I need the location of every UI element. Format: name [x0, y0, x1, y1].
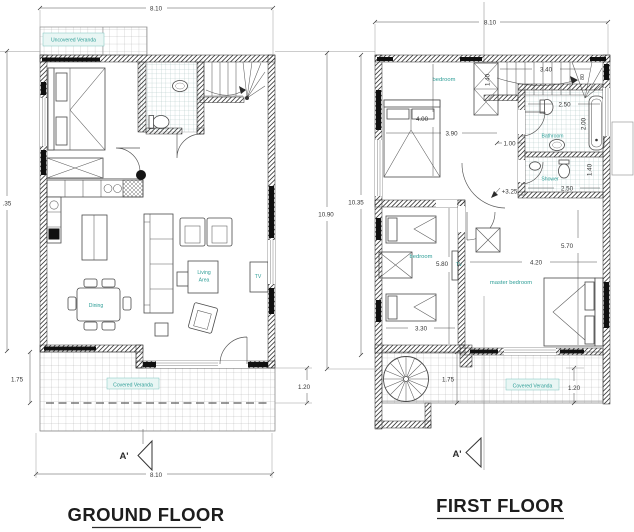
ff-spiral-staircase: [384, 357, 429, 402]
ff-dim-stairs-run: 3.40: [540, 67, 553, 74]
ff-master-bedroom-label: master bedroom: [490, 280, 532, 286]
ff-hall-door: [462, 163, 505, 208]
gf-dining: Dining: [68, 279, 131, 330]
ff-section-label: A': [452, 449, 461, 460]
gf-armchair: [180, 218, 205, 246]
ground-floor-plan: Uncovered Veranda: [0, 6, 375, 528]
gf-sink: [173, 81, 188, 92]
ff-section-marker: A': [452, 438, 481, 467]
ff-section-triangle: [466, 438, 481, 467]
ff-master-bedroom: master bedroom: [476, 228, 603, 346]
gf-side-table: [155, 323, 168, 336]
ff-dim-bedroom2-width: 3.30: [415, 326, 428, 333]
gf-entrance-door: [220, 337, 247, 364]
gf-section-marker: A': [119, 429, 152, 470]
gf-dim-veranda-right: 1.20: [298, 384, 311, 391]
gf-living-room: Living Area TV: [136, 170, 268, 336]
ff-dim-bedroom2-height: 5.80: [436, 261, 449, 268]
gf-column: [136, 170, 146, 180]
ff-shower-toilet: [559, 164, 570, 178]
ff-dim-veranda-right: 1.20: [568, 385, 581, 392]
gf-oven: [49, 229, 60, 240]
floor-plan-drawing: Uncovered Veranda: [0, 0, 634, 532]
gf-armchair: [207, 218, 232, 246]
ff-dim-bedroom1-height: 4.00: [416, 116, 429, 123]
ff-bathroom-label: Bathroom: [541, 134, 563, 140]
gf-uncovered-veranda: Uncovered Veranda: [40, 27, 147, 55]
floor-plan-sheet: Uncovered Veranda: [0, 0, 634, 532]
ff-dim-shower-height: 1.40: [587, 163, 594, 176]
ff-dim-inner-height: 10.35: [348, 200, 364, 207]
ff-title: FIRST FLOOR: [436, 495, 564, 519]
gf-living-label-2: Area: [199, 278, 210, 284]
gf-bedroom: [47, 68, 140, 178]
gf-tv-label: TV: [255, 274, 262, 280]
gf-section-label: A': [119, 451, 128, 462]
gf-kitchen-island: [82, 215, 107, 260]
ff-dim-outer-height: 10.90: [318, 212, 334, 219]
gf-title: GROUND FLOOR: [68, 504, 225, 528]
ff-shower-sink: [530, 162, 541, 170]
gf-staircase: [200, 62, 265, 103]
ff-dim-veranda-left: 1.75: [442, 377, 455, 384]
ff-dim-hall: 1.00: [503, 141, 516, 148]
ff-dim-bedroom1-width: 3.90: [445, 131, 458, 138]
ff-bedroom1-label: bedroom: [433, 77, 456, 83]
gf-title-text: GROUND FLOOR: [68, 504, 225, 525]
ff-dim-master-width: 4.20: [530, 260, 543, 267]
gf-stove: [123, 180, 143, 197]
ff-covered-veranda-label: Covered Veranda: [513, 384, 553, 390]
gf-bedroom-door: [116, 148, 140, 172]
ff-dim-shower-width: 2.50: [561, 186, 574, 193]
gf-sofa: [144, 214, 173, 313]
first-floor-plan: bedroom Bathroom Shower: [318, 2, 633, 519]
ff-shower-label: Shower: [541, 177, 559, 183]
gf-kitchen: [47, 179, 143, 261]
ff-title-text: FIRST FLOOR: [436, 495, 564, 516]
gf-armchair: [188, 302, 218, 333]
gf-covered-veranda-label: Covered Veranda: [113, 383, 153, 389]
ff-dim-bathroom-width: 2.50: [558, 102, 571, 109]
ff-dim-stairs-side: 1.40: [485, 73, 492, 86]
ff-bedroom1: bedroom: [384, 63, 498, 177]
ff-dim-top-width: 8.10: [484, 20, 497, 27]
gf-bathroom-door: [177, 134, 201, 158]
gf-uncovered-veranda-label: Uncovered Veranda: [51, 38, 96, 44]
ff-bath-sink: [550, 140, 565, 151]
ff-dim-stairs-width: 80: [580, 74, 586, 80]
gf-dining-label: Dining: [89, 303, 104, 309]
ff-bedroom2: bedroom TV: [379, 216, 463, 321]
gf-toilet: [153, 116, 169, 129]
gf-dim-bottom-width: 8.10: [150, 472, 163, 479]
gf-living-label-1: Living: [197, 270, 210, 276]
gf-dim-veranda-left: 1.75: [11, 377, 24, 384]
gf-dim-top-width: 8.10: [150, 6, 163, 13]
ff-bedroom2-label: bedroom: [410, 254, 433, 260]
ff-planter-box: [612, 122, 633, 175]
ff-level-marker: +3.25: [502, 189, 518, 196]
gf-section-triangle: [138, 441, 152, 470]
ff-dim-bathtub: 2.00: [581, 117, 588, 130]
gf-dim-left-height: .35: [3, 201, 12, 208]
ff-dim-master-height: 5.70: [561, 243, 574, 250]
